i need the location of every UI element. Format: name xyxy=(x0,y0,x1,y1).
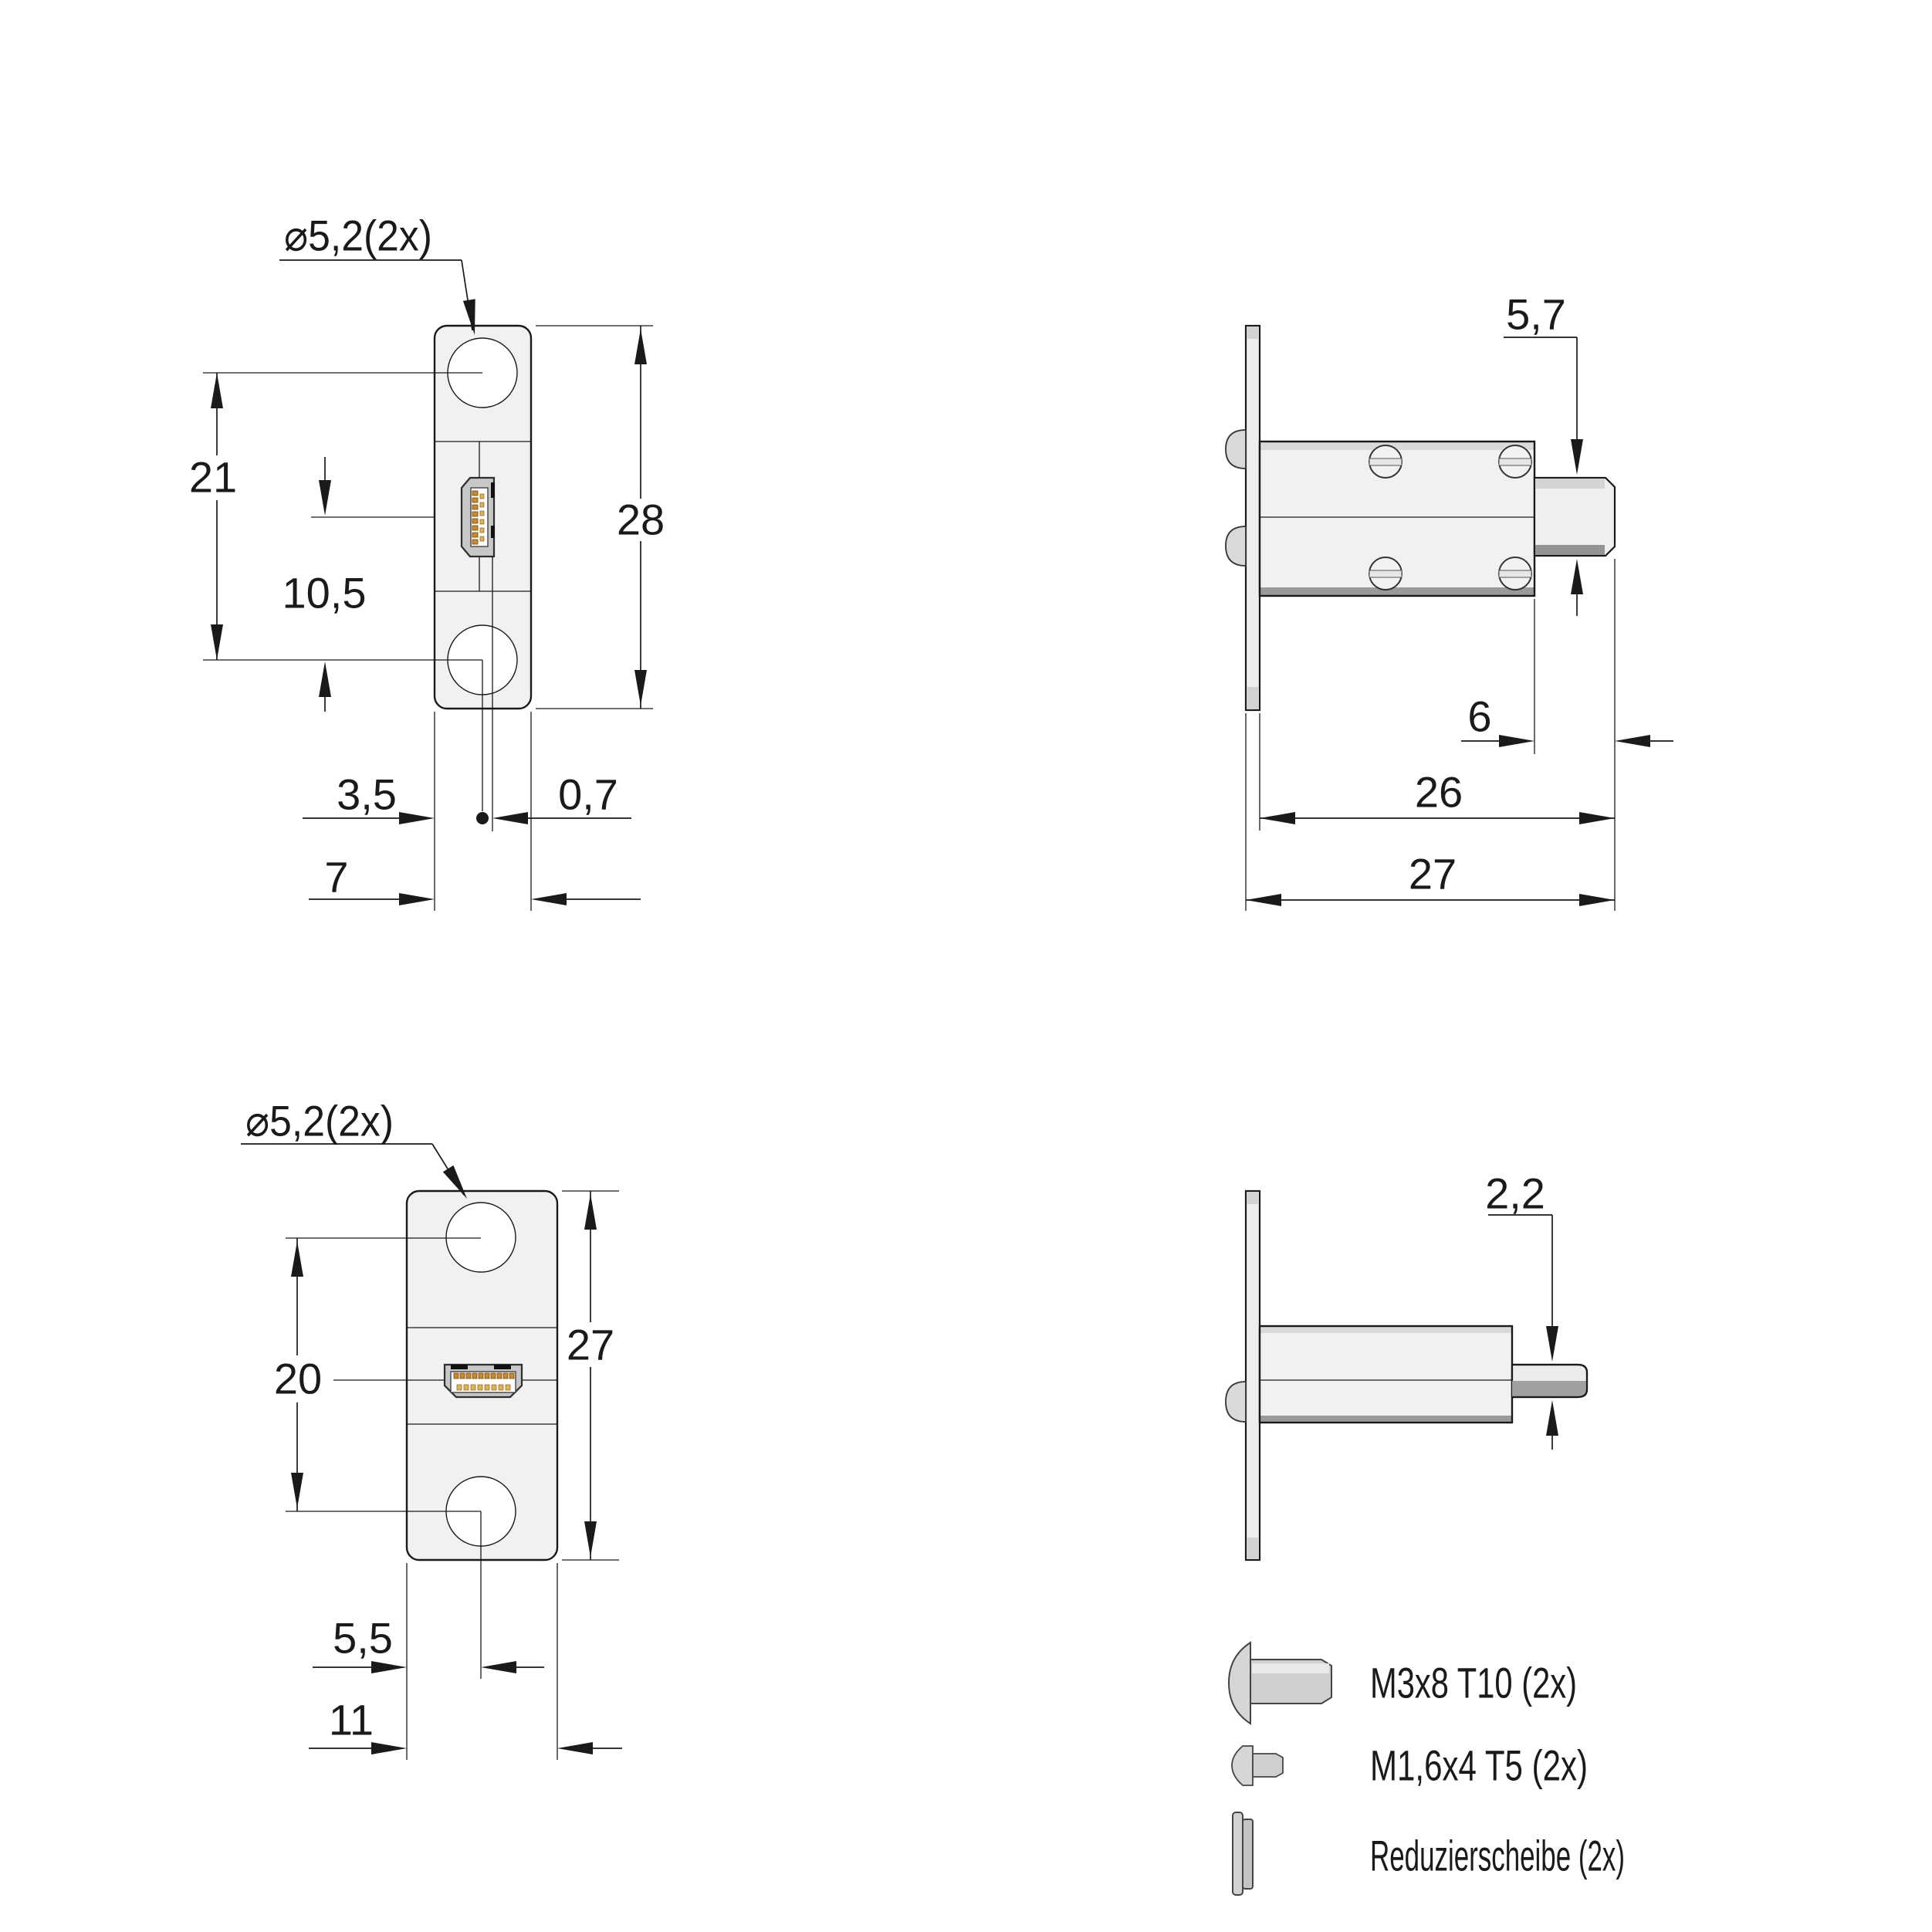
legend-label-washer: Reduzierscheibe (2x) xyxy=(1370,1832,1625,1880)
connector-pin xyxy=(1512,1365,1587,1397)
sheet-background xyxy=(0,0,1932,1932)
slotted-screw xyxy=(1499,445,1531,478)
dim-text-hole-diameter: ⌀5,2(2x) xyxy=(284,211,432,260)
mounting-hole-top xyxy=(446,1203,516,1272)
dim-text-depth-from-face: 26 xyxy=(1415,768,1463,817)
connector-latch-notch xyxy=(491,526,495,538)
connector-plug xyxy=(1534,478,1615,556)
panel-plate xyxy=(1246,326,1260,710)
dim-text-plate-width: 11 xyxy=(329,1696,374,1744)
dimension-origin-dot xyxy=(476,812,489,824)
screw-shank-highlight xyxy=(1252,1663,1329,1673)
washer-icon xyxy=(1233,1812,1253,1895)
legend-label-m16: M1,6x4 T5 (2x) xyxy=(1370,1741,1588,1790)
body-bottom-shade xyxy=(1260,587,1534,596)
dim-text-pin-height: 2,2 xyxy=(1485,1169,1545,1218)
slotted-screw xyxy=(1369,557,1402,590)
connector-latch-notch xyxy=(494,1365,511,1369)
body-top-shade xyxy=(1260,442,1534,450)
legend-label-m3: M3x8 T10 (2x) xyxy=(1370,1659,1577,1707)
dim-text-edge-to-center: 5,5 xyxy=(333,1614,393,1663)
plate-end-shade xyxy=(1247,1192,1259,1204)
dim-text-center-offset: 0,7 xyxy=(558,770,618,819)
plate-end-shade xyxy=(1247,1538,1259,1559)
dim-text-hole-diameter: ⌀5,2(2x) xyxy=(245,1097,394,1145)
drawing-sheet: ⌀5,2(2x) 21 10,5 28 xyxy=(0,0,1932,1932)
hdmi-connector xyxy=(445,1365,522,1397)
dim-text-total-depth: 27 xyxy=(1409,850,1457,898)
dim-text-hole-spacing: 21 xyxy=(189,453,237,502)
dim-text-plate-height: 27 xyxy=(567,1321,614,1369)
connector-latch-notch xyxy=(491,482,495,498)
panel-plate xyxy=(1246,1191,1260,1560)
plug-bottom-shade xyxy=(1535,545,1605,555)
connector-body xyxy=(1260,1326,1512,1423)
dim-text-connector-to-hole: 10,5 xyxy=(283,569,367,617)
mini-hdmi-connector xyxy=(462,478,495,557)
connector-latch-notch xyxy=(451,1365,468,1369)
plate-end-shade xyxy=(1247,327,1259,339)
slotted-screw xyxy=(1369,445,1402,478)
dim-text-plate-height: 28 xyxy=(617,496,665,544)
slotted-screw xyxy=(1499,557,1531,590)
dim-text-edge-to-center: 3,5 xyxy=(337,770,397,819)
plug-top-shade xyxy=(1535,479,1605,489)
body-bottom-shade xyxy=(1260,1416,1512,1423)
connector-cavity xyxy=(471,488,488,546)
dim-text-plug-height: 5,7 xyxy=(1506,290,1566,339)
technical-drawing: ⌀5,2(2x) 21 10,5 28 xyxy=(0,0,1932,1932)
dim-text-hole-spacing: 20 xyxy=(274,1355,322,1403)
dim-text-plug-length: 6 xyxy=(1467,692,1491,741)
dim-text-plate-width: 7 xyxy=(324,853,348,902)
body-top-shade xyxy=(1260,1326,1512,1333)
pin-bottom-shade xyxy=(1512,1381,1587,1397)
plate-end-shade xyxy=(1247,687,1259,709)
